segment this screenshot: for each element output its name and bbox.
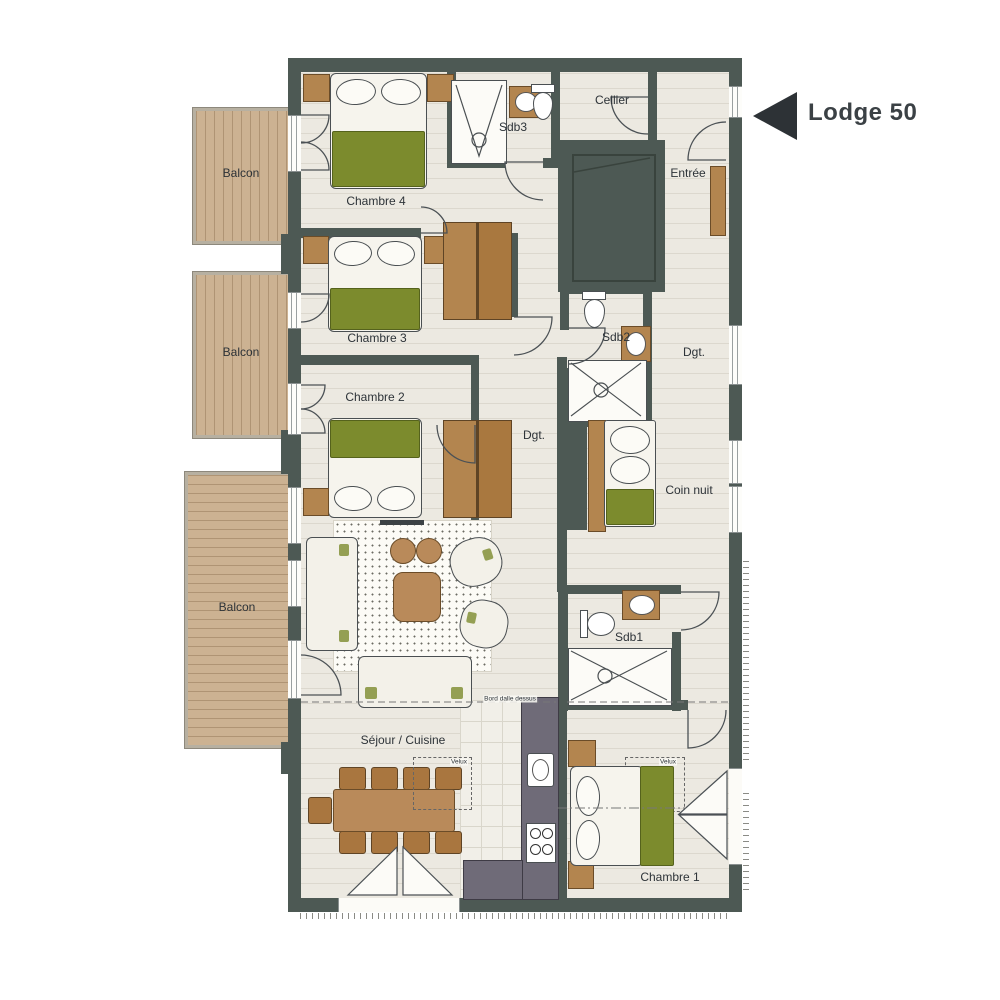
blanket [332,131,425,187]
room-label-dgt-middle: Dgt. [523,428,545,442]
blanket [330,288,420,330]
wardrobe-chambre3 [443,222,512,320]
coffee-table [393,572,441,622]
wall-sdb2-left-a [560,285,569,330]
page-title: Lodge 50 [808,99,917,127]
door-opening-balcony-bottom [288,640,301,699]
cushion-green [482,548,494,561]
cushion-green [451,687,463,699]
wall-corridor-left-a [471,365,479,425]
shaft-inner-outline [572,154,656,282]
wall-sdb1-top [558,585,681,594]
blanket [606,489,654,525]
room-label-chambre3: Chambre 3 [347,331,406,345]
window-balcony-bottom-a [288,487,301,544]
room-label-chambre4: Chambre 4 [346,194,405,208]
wall-cellier-entree [648,72,657,144]
room-label-balcon-bottom: Balcon [219,600,256,614]
nightstand [427,74,454,102]
exterior-hatch-right-2 [743,790,749,890]
cushion-green [466,611,477,624]
tv-console [380,520,424,525]
cushion-green [339,630,349,642]
nightstand [568,740,596,767]
room-label-chambre2: Chambre 2 [345,390,404,404]
dining-chair [435,831,462,854]
nightstand [303,74,330,102]
exterior-hatch-bottom [300,913,730,919]
duct-block [567,420,587,530]
arrow-left-icon [753,92,797,140]
sofa-left [306,537,358,651]
window-balcony-middle-a [288,292,301,329]
room-label-dgt-upper: Dgt. [683,345,705,359]
burner [530,828,541,839]
pouf [416,538,442,564]
sofa-bottom [358,656,472,708]
wall-sdb2-top [560,285,652,294]
room-label-balcon-top: Balcon [223,166,260,180]
kitchen-sink [527,753,554,787]
wall-pier-2 [281,430,301,474]
window-balcony-middle-b [288,383,301,435]
dining-chair [403,831,430,854]
wall-sdb1-right-a [672,585,681,592]
annotation-velux-chambre1: Velux [659,759,677,766]
dining-chair [371,831,398,854]
exterior-hatch-right-1 [743,560,749,760]
console-entree [710,166,726,236]
room-label-balcon-middle: Balcon [223,345,260,359]
window-coin-nuit-b [729,486,742,533]
dining-chair [308,797,332,824]
kitchen-counter-vertical [521,697,559,900]
wall-chambre3-chambre2 [301,355,479,365]
french-door-sejour [338,898,460,912]
window-balcony-top [288,115,301,172]
kitchen-counter-bottom [463,860,523,900]
dining-chair [371,767,398,790]
room-label-sdb1: Sdb1 [615,630,643,644]
annotation-velux-sejour: Velux [450,759,468,766]
room-label-entree: Entrée [670,166,705,180]
annotation-bord-dalle: Bord dalle dessus [483,696,537,703]
room-label-sdb2: Sdb2 [602,330,630,344]
blanket [330,420,420,458]
window-coin-nuit-a [729,440,742,484]
wall-left [288,58,301,912]
sink-sdb1 [622,590,660,620]
room-label-chambre1: Chambre 1 [640,870,699,884]
burner [542,844,553,855]
room-label-sejour-cuisine: Séjour / Cuisine [361,733,446,747]
shower-sdb2 [568,360,647,422]
wall-pier-1 [281,234,301,274]
wall-top [288,58,742,72]
wall-pier-3 [281,742,301,774]
room-label-cellier: Cellier [595,93,629,107]
wardrobe-chambre2 [443,420,512,518]
nightstand [303,488,329,516]
toilet-sdb1 [587,612,615,636]
blanket [640,766,674,866]
burner [542,828,553,839]
shower-sdb1 [568,648,672,706]
french-door-chambre1 [729,768,742,865]
window-dgt [729,325,742,385]
window-entree [729,86,742,118]
nightstand [303,236,329,264]
dining-chair [339,767,366,790]
pouf [390,538,416,564]
stove [526,823,556,863]
room-label-sdb3: Sdb3 [499,120,527,134]
sink-basin [532,759,549,781]
window-balcony-bottom-b [288,560,301,607]
sink-basin [629,595,655,615]
wall-sdb1-left [558,585,568,711]
dining-chair [339,831,366,854]
floor-plan-page: Lodge 50 [0,0,1000,1000]
wall-coin-nuit-left [557,357,567,592]
cushion-green [339,544,349,556]
burner [530,844,541,855]
room-label-coin-nuit: Coin nuit [665,483,712,497]
cushion-green [365,687,377,699]
